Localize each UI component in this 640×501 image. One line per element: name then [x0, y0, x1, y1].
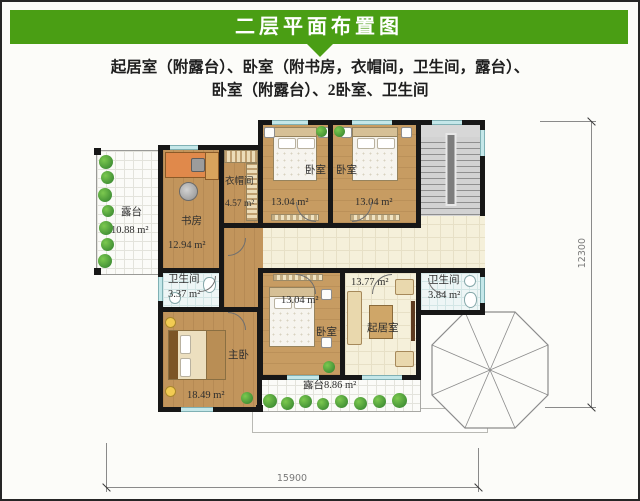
sink-icon — [464, 275, 476, 287]
staircase — [416, 120, 485, 216]
room-study: 书房 12.94 m² — [158, 145, 224, 273]
room-label: 衣帽间 — [225, 176, 254, 188]
room-area: 12.94 m² — [168, 240, 206, 252]
room-area: 3.37 m² — [168, 289, 200, 301]
window — [352, 120, 392, 125]
room-terrace-bottom: 露台8.86 m² — [258, 375, 421, 412]
duvet — [270, 310, 314, 346]
extension-line — [540, 121, 596, 122]
room-label: 主卧 — [228, 350, 249, 362]
pillow — [357, 138, 375, 149]
window — [362, 375, 402, 380]
room-bathroom-left: 卫生间 3.37 m² — [158, 268, 224, 312]
plant-icon — [98, 254, 112, 268]
dimension-label-height: 12300 — [577, 238, 588, 268]
room-label: 卫生间 — [168, 274, 200, 286]
room-label: 露台8.86 m² — [303, 380, 356, 392]
nightstand — [401, 127, 412, 138]
room-area: 18.49 m² — [187, 390, 225, 402]
lamp-icon — [165, 317, 176, 328]
plant-icon — [373, 395, 386, 408]
double-bed — [168, 330, 226, 380]
terrace-bottom-name: 露台 — [303, 380, 324, 391]
closet — [224, 150, 258, 163]
plant-icon — [392, 393, 407, 408]
summary-line-1: 起居室（附露台）、卧室（附书房，衣帽间，卫生间，露台）、 — [0, 56, 640, 79]
plant-icon — [101, 171, 114, 184]
plant-icon — [354, 397, 367, 410]
toilet-icon — [464, 292, 477, 308]
room-bedroom-top-right: 卧室 13.04 m² — [328, 120, 421, 228]
window — [272, 120, 308, 125]
nightstand — [264, 127, 275, 138]
pillow — [278, 138, 296, 149]
nightstand — [321, 289, 332, 300]
plant-icon — [323, 361, 335, 373]
room-bathroom-right: 卫生间 3.84 m² — [416, 268, 485, 315]
sofa — [347, 291, 362, 345]
room-area: 10.88 m² — [111, 225, 149, 237]
room-area: 3.84 m² — [428, 290, 460, 302]
lamp-icon — [165, 386, 176, 397]
floor-plan-page: 二层平面布置图 起居室（附露台）、卧室（附书房，衣帽间，卫生间，露台）、 卧室（… — [0, 0, 640, 501]
room-cloakroom: 衣帽间 4.57 m² — [219, 145, 263, 228]
terrace-post — [256, 405, 263, 412]
plant-icon — [241, 392, 253, 404]
plan-summary: 起居室（附露台）、卧室（附书房，衣帽间，卫生间，露台）、 卧室（附露台）、2卧室… — [0, 56, 640, 102]
plant-icon — [316, 126, 327, 137]
plant-icon — [335, 395, 348, 408]
window — [170, 145, 198, 150]
headboard — [353, 128, 397, 137]
terrace-bottom-area: 8.86 m² — [324, 380, 356, 391]
room-area: 13.04 m² — [281, 295, 319, 307]
armchair — [395, 351, 414, 367]
corridor — [219, 223, 263, 312]
plant-icon — [102, 205, 114, 217]
window — [480, 277, 485, 303]
room-master-bedroom: 主卧 18.49 m² — [158, 307, 262, 412]
pillow — [180, 335, 191, 354]
window — [158, 277, 163, 301]
extension-line — [545, 407, 596, 408]
pillow — [377, 138, 395, 149]
room-bedroom-top-left: 卧室 13.04 m² — [258, 120, 333, 228]
terrace-post — [94, 268, 101, 275]
plant-icon — [281, 397, 294, 410]
room-label: 卧室 — [305, 165, 326, 177]
dimension-line-bottom — [106, 487, 478, 488]
room-label: 书房 — [181, 216, 202, 228]
plant-icon — [98, 188, 112, 202]
plant-icon — [99, 221, 113, 235]
headboard — [169, 331, 178, 379]
window — [432, 120, 462, 125]
extension-line — [478, 448, 479, 492]
plant-icon — [299, 395, 312, 408]
summary-line-2: 卧室（附露台）、2卧室、卫生间 — [0, 79, 640, 102]
dimension-line-right — [591, 121, 592, 407]
plant-icon — [101, 238, 114, 251]
room-label: 起居室 — [367, 323, 399, 335]
pillow — [180, 358, 191, 377]
plant-icon — [99, 155, 113, 169]
extension-line — [106, 443, 107, 492]
tv-cabinet — [411, 301, 415, 341]
window — [181, 407, 213, 412]
room-label: 露台 — [121, 207, 142, 219]
room-label: 卧室 — [336, 165, 357, 177]
pillow — [297, 138, 315, 149]
office-chair — [179, 182, 198, 201]
handrail — [445, 133, 456, 206]
room-terrace-left: 露台 10.88 m² — [96, 150, 163, 275]
headboard — [274, 128, 316, 137]
page-title: 二层平面布置图 — [10, 10, 628, 44]
closet — [246, 163, 258, 221]
armchair — [395, 279, 414, 295]
blanket — [206, 331, 225, 379]
double-bed — [352, 127, 398, 181]
plant-icon — [334, 126, 345, 137]
dimension-label-width: 15900 — [262, 473, 322, 484]
duvet — [353, 150, 397, 180]
room-label: 卧室 — [316, 327, 337, 339]
computer-icon — [191, 158, 205, 172]
terrace-post — [94, 148, 101, 155]
bookshelf — [205, 152, 219, 180]
room-area: 4.57 m² — [225, 198, 254, 210]
window — [480, 130, 485, 156]
window — [287, 375, 319, 380]
plant-icon — [317, 398, 329, 410]
gazebo-roof — [430, 310, 550, 430]
plant-icon — [263, 394, 277, 408]
header-bar: 二层平面布置图 — [10, 10, 628, 44]
